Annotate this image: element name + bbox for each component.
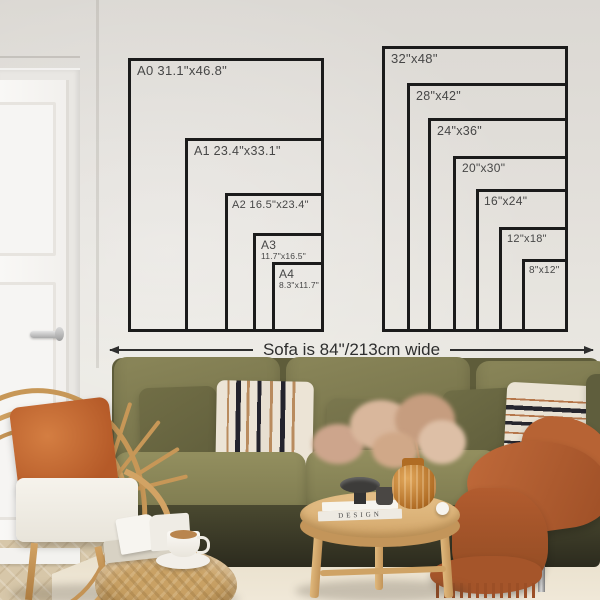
size-box-a3-dims: 11.7"x16.5" xyxy=(261,252,306,262)
door-handle-rosette xyxy=(55,327,64,341)
size-box-28x42-label: 28"x42" xyxy=(416,89,461,103)
small-cup xyxy=(376,487,393,505)
arrow-head-left-icon xyxy=(109,346,119,354)
dried-flowers xyxy=(418,420,466,464)
size-box-12x18-label: 12"x18" xyxy=(507,233,547,245)
arrow-line-left xyxy=(110,349,253,351)
size-box-16x24-label: 16"x24" xyxy=(484,195,527,208)
size-box-a4-dims: 8.3"x11.7" xyxy=(279,281,319,291)
size-box-a4-label: A4 8.3"x11.7" xyxy=(279,268,319,291)
wall-molding xyxy=(0,56,80,70)
living-room-size-guide: A0 31.1"x46.8" A1 23.4"x33.1" A2 16.5"x2… xyxy=(0,0,600,600)
size-box-a3-name: A3 xyxy=(261,238,276,252)
decor-sphere xyxy=(436,502,449,515)
coffee-surface xyxy=(170,530,197,539)
wall-trim-line xyxy=(96,0,99,368)
size-box-a4-name: A4 xyxy=(279,267,294,281)
size-box-a3-label: A3 11.7"x16.5" xyxy=(261,239,306,262)
door-panel-upper xyxy=(0,102,56,256)
size-box-a4: A4 8.3"x11.7" xyxy=(272,262,324,332)
size-box-8x12: 8"x12" xyxy=(522,259,568,332)
size-box-32x48-label: 32"x48" xyxy=(391,52,438,67)
vase-ribs xyxy=(392,465,436,509)
size-box-20x30-label: 20"x30" xyxy=(462,162,505,175)
size-box-a1-label: A1 23.4"x33.1" xyxy=(194,144,281,158)
size-box-8x12-label: 8"x12" xyxy=(529,265,560,276)
size-box-a2-label: A2 16.5"x23.4" xyxy=(232,199,309,211)
size-box-a0-label: A0 31.1"x46.8" xyxy=(137,64,227,79)
design-book-spine-title: DESIGN xyxy=(338,510,382,520)
size-box-24x36-label: 24"x36" xyxy=(437,124,482,138)
arrow-line-right xyxy=(450,349,593,351)
pedestal-bowl xyxy=(340,477,380,493)
arrow-head-right-icon xyxy=(584,346,594,354)
